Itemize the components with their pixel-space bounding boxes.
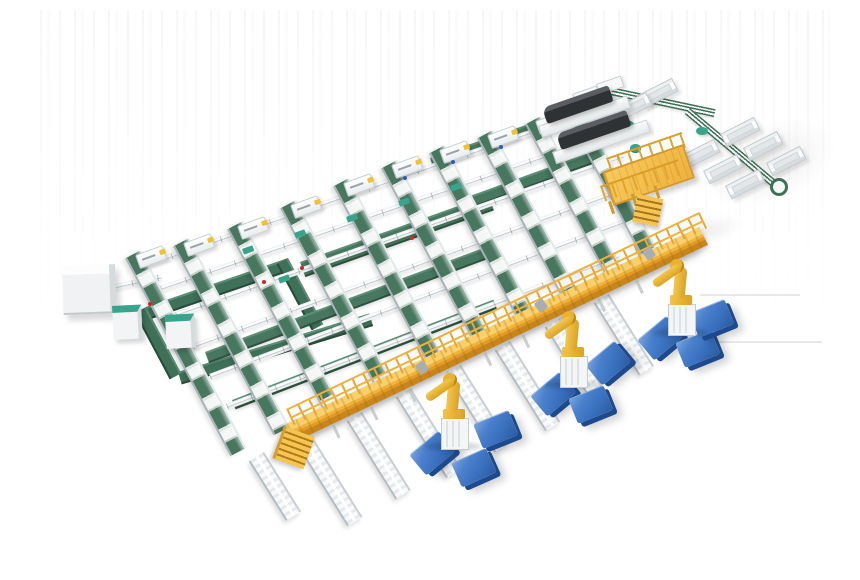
robot-arm	[415, 360, 495, 452]
robot-arm	[642, 246, 722, 338]
robot-pedestal	[441, 418, 469, 450]
marker-dot-blue	[499, 145, 503, 149]
electrical-enclosure	[62, 264, 117, 315]
robot-arm	[534, 298, 614, 390]
render-canvas	[0, 0, 860, 580]
marker-dot-red	[148, 302, 152, 306]
marker-dot-red	[300, 266, 304, 270]
control-cabinet	[112, 304, 143, 339]
robot-pedestal	[668, 304, 696, 336]
robot-wrist	[415, 360, 430, 375]
teal-turntable	[696, 127, 708, 135]
floor-line	[706, 341, 822, 343]
robot-wrist	[642, 246, 657, 261]
marker-dot-blue	[403, 176, 407, 180]
control-cabinet	[165, 313, 196, 348]
pallet	[451, 448, 497, 488]
robot-wrist	[534, 298, 549, 313]
marker-dot-red	[410, 236, 414, 240]
marker-dot-red	[262, 280, 266, 284]
platform-stairs	[632, 194, 663, 227]
marker-dot-blue	[451, 160, 455, 164]
belt-u-turn	[770, 178, 788, 196]
robot-pedestal	[560, 356, 588, 388]
